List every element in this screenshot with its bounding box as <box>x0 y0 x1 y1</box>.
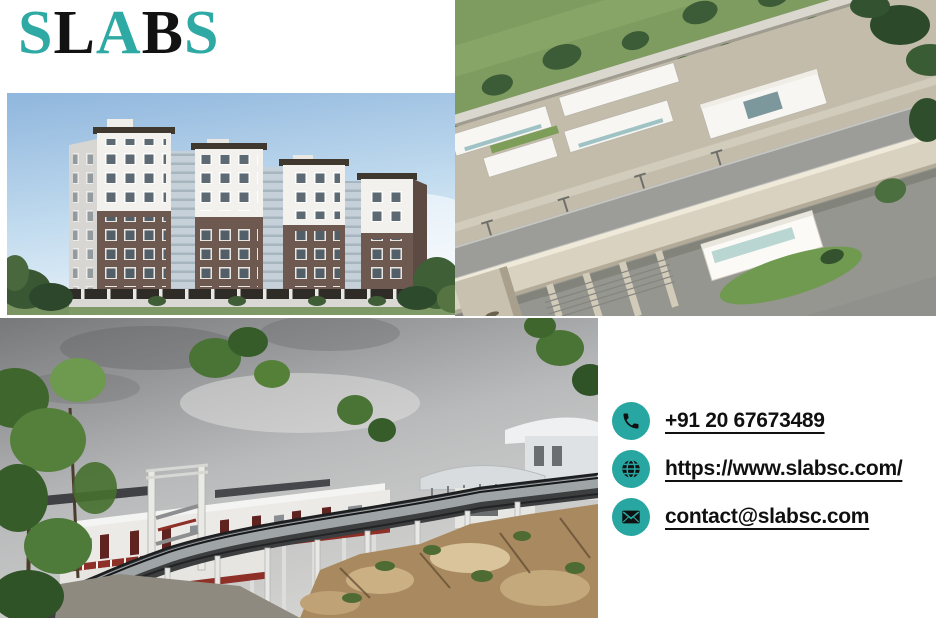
brand-logo: SLABS <box>18 2 219 64</box>
campus-illustration: KEF <box>455 0 936 316</box>
walkway-illustration <box>0 318 598 618</box>
campus-scene: KEF <box>455 0 936 316</box>
globe-glyph <box>620 458 642 480</box>
logo-letter: S <box>18 0 53 67</box>
phone-number-link[interactable]: +91 20 67673489 <box>665 409 825 433</box>
logo-letter: L <box>53 0 95 67</box>
email-icon <box>612 498 650 536</box>
logo-letter: S <box>184 0 219 67</box>
apartment-photo <box>7 93 455 315</box>
contact-phone-row: +91 20 67673489 <box>612 402 902 440</box>
campus-photo: KEF <box>455 0 936 316</box>
contact-list: +91 20 67673489 https://www.slabsc.com/ <box>612 402 902 546</box>
contact-website-row: https://www.slabsc.com/ <box>612 450 902 488</box>
flyer-canvas: SLABS <box>0 0 936 618</box>
phone-icon <box>612 402 650 440</box>
envelope-glyph <box>620 506 642 528</box>
website-link[interactable]: https://www.slabsc.com/ <box>665 457 902 481</box>
contact-email-row: contact@slabsc.com <box>612 498 902 536</box>
logo-letter: A <box>96 0 142 67</box>
apartment-illustration <box>7 93 455 315</box>
logo-letter: B <box>142 0 184 67</box>
globe-icon <box>612 450 650 488</box>
email-link[interactable]: contact@slabsc.com <box>665 505 869 529</box>
walkway-photo <box>0 318 598 618</box>
phone-glyph <box>621 411 641 431</box>
